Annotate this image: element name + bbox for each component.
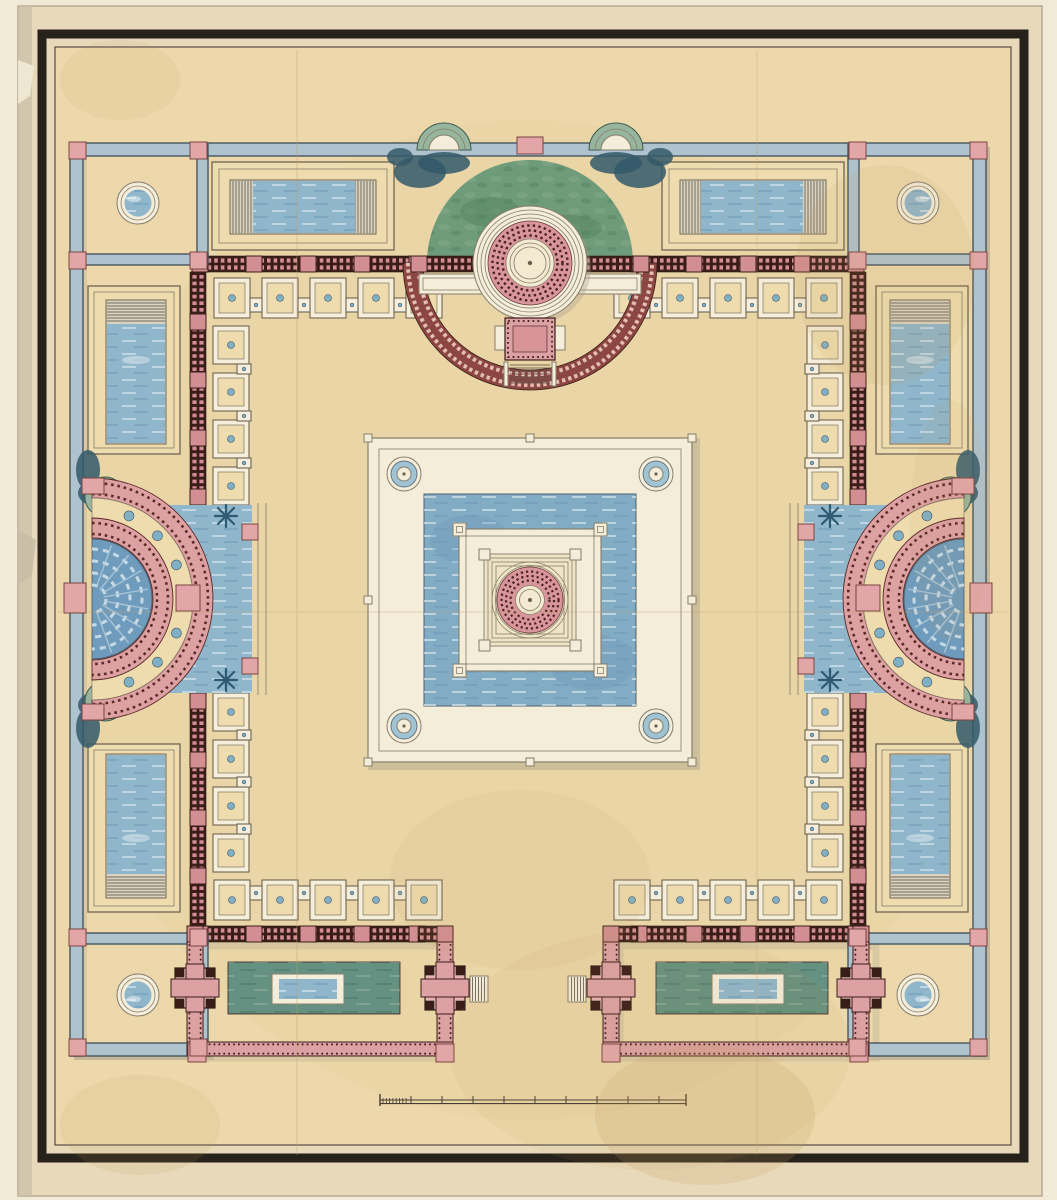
deckle-edge xyxy=(18,6,32,1196)
side-hall-upper-left xyxy=(88,286,180,454)
wall-pier-top-center xyxy=(517,137,543,154)
top-hall-left xyxy=(212,162,394,250)
central-round-pavilion xyxy=(492,562,568,638)
artwork-sheet xyxy=(0,0,1057,1200)
central-basin-complex xyxy=(364,434,696,766)
side-hall-lower-left xyxy=(88,744,180,912)
plan-drawing xyxy=(0,0,1057,1200)
side-hall-lower-right xyxy=(876,744,968,912)
